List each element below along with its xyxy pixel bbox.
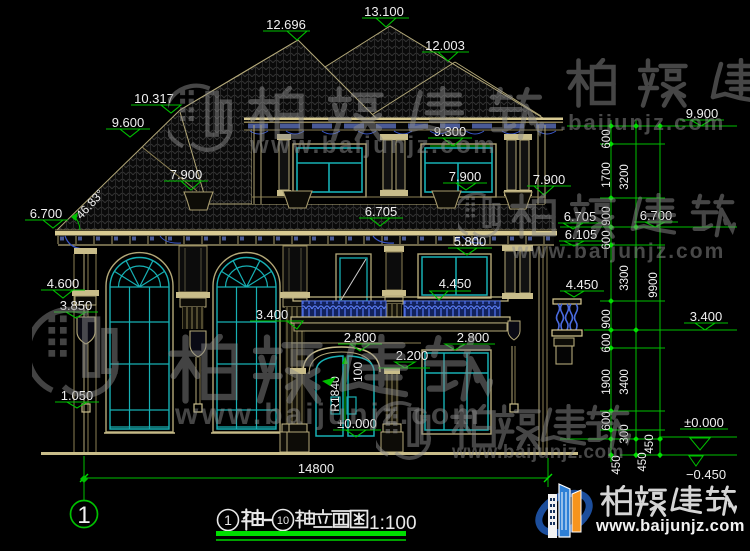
svg-text:3200: 3200 — [619, 164, 631, 190]
svg-text:www.baijunjz.com: www.baijunjz.com — [595, 517, 745, 535]
svg-text:10: 10 — [277, 515, 289, 527]
svg-text:1: 1 — [224, 512, 232, 528]
svg-text:www.baijunjz.com: www.baijunjz.com — [174, 398, 482, 431]
svg-text:6.705: 6.705 — [365, 204, 398, 219]
svg-text:3300: 3300 — [619, 265, 631, 291]
svg-text:1:100: 1:100 — [369, 513, 417, 534]
svg-text:900: 900 — [601, 309, 613, 328]
svg-text:3.400: 3.400 — [256, 307, 289, 322]
svg-text:4.600: 4.600 — [47, 276, 80, 291]
svg-text:600: 600 — [601, 333, 613, 352]
svg-text:13.100: 13.100 — [364, 4, 404, 19]
svg-text:3400: 3400 — [619, 369, 631, 395]
svg-text:7.900: 7.900 — [533, 172, 566, 187]
svg-text:6.700: 6.700 — [30, 206, 63, 221]
svg-text:1: 1 — [77, 502, 90, 529]
svg-text:www.baijunjz.com: www.baijunjz.com — [451, 442, 624, 463]
svg-text:9900: 9900 — [648, 272, 660, 298]
svg-text:4.450: 4.450 — [439, 276, 472, 291]
svg-text:7.900: 7.900 — [449, 169, 482, 184]
svg-text:3.400: 3.400 — [690, 309, 723, 324]
svg-text:450: 450 — [644, 434, 656, 453]
svg-text:4.450: 4.450 — [566, 277, 599, 292]
svg-text:1700: 1700 — [601, 162, 613, 188]
svg-text:.baijunjz.com: .baijunjz.com — [560, 110, 725, 135]
svg-text:12.696: 12.696 — [266, 17, 306, 32]
svg-text:www.baijunjz.com: www.baijunjz.com — [249, 132, 497, 159]
svg-text:10.317: 10.317 — [134, 91, 174, 106]
svg-text:14800: 14800 — [298, 461, 334, 476]
svg-text:12.003: 12.003 — [425, 38, 465, 53]
svg-text:www.baijunjz.com: www.baijunjz.com — [511, 240, 725, 263]
svg-text:1900: 1900 — [601, 369, 613, 395]
svg-text:−0.450: −0.450 — [686, 467, 726, 482]
svg-text:7.900: 7.900 — [170, 167, 203, 182]
svg-text:±0.000: ±0.000 — [684, 415, 724, 430]
svg-text:450: 450 — [637, 452, 649, 471]
svg-text:9.600: 9.600 — [112, 115, 145, 130]
